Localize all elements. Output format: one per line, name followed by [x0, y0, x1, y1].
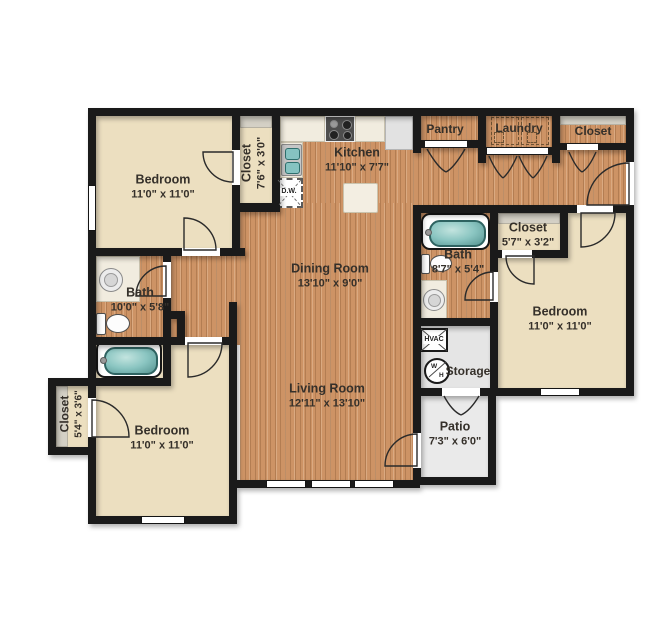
room-label-bath-l: Bath 10'0" x 5'8" [111, 285, 169, 316]
room-label-dining: Dining Room 13'10" x 9'0" [291, 261, 369, 292]
room-name: Bedroom [528, 304, 591, 320]
room-dims: 11'0" x 11'0" [131, 188, 194, 203]
room-label-closet-bl: Closet 5'4" x 3'6" [58, 390, 87, 438]
room-dims: 13'10" x 9'0" [291, 277, 369, 292]
room-dims: 8'7" x 5'4" [432, 263, 484, 278]
room-label-bedroom-tl: Bedroom 11'0" x 11'0" [131, 172, 194, 203]
room-name: Bath [111, 285, 169, 301]
floor-plan: W H [0, 0, 672, 626]
room-label-storage: Storage [446, 364, 491, 378]
room-label-closet-tl: Closet 7'6" x 3'0" [239, 137, 270, 189]
room-label-pantry: Pantry [426, 122, 463, 136]
room-name: Pantry [426, 122, 463, 136]
room-dims: 5'4" x 3'6" [72, 390, 87, 438]
room-dims: 12'11" x 13'10" [289, 397, 365, 412]
room-name: Laundry [495, 121, 542, 135]
hvac-text: HVAC [423, 336, 444, 344]
room-dims: 7'6" x 3'0" [255, 137, 270, 189]
room-dims: 7'3" x 6'0" [429, 435, 481, 450]
room-label-closet-tr: Closet [575, 124, 612, 138]
room-name: Bath [432, 247, 484, 263]
room-dims: 10'0" x 5'8" [111, 301, 169, 316]
labels-layer: Bedroom 11'0" x 11'0" Closet 7'6" x 3'0"… [0, 0, 672, 626]
room-name: Bedroom [130, 423, 193, 439]
room-name: Bedroom [131, 172, 194, 188]
room-dims: 5'7" x 3'2" [502, 236, 554, 251]
room-name: Closet [502, 220, 554, 236]
dishwasher-label: D.W. [280, 188, 297, 196]
room-label-bedroom-r: Bedroom 11'0" x 11'0" [528, 304, 591, 335]
room-name: Kitchen [325, 145, 389, 161]
room-label-closet-r: Closet 5'7" x 3'2" [502, 220, 554, 251]
room-label-laundry: Laundry [495, 121, 542, 135]
hvac-label: HVAC [423, 336, 444, 344]
room-name: Dining Room [291, 261, 369, 277]
dishwasher-text: D.W. [280, 188, 297, 196]
room-label-bedroom-bl: Bedroom 11'0" x 11'0" [130, 423, 193, 454]
room-name: Closet [575, 124, 612, 138]
room-label-patio: Patio 7'3" x 6'0" [429, 419, 481, 450]
room-name: Patio [429, 419, 481, 435]
room-dims: 11'10" x 7'7" [325, 161, 389, 176]
room-dims: 11'0" x 11'0" [528, 320, 591, 335]
room-label-living: Living Room 12'11" x 13'10" [289, 381, 365, 412]
room-name: Living Room [289, 381, 365, 397]
room-label-bath-r: Bath 8'7" x 5'4" [432, 247, 484, 278]
room-name: Closet [239, 137, 255, 189]
room-name: Closet [58, 390, 72, 438]
room-label-kitchen: Kitchen 11'10" x 7'7" [325, 145, 389, 176]
room-name: Storage [446, 364, 491, 378]
room-dims: 11'0" x 11'0" [130, 439, 193, 454]
